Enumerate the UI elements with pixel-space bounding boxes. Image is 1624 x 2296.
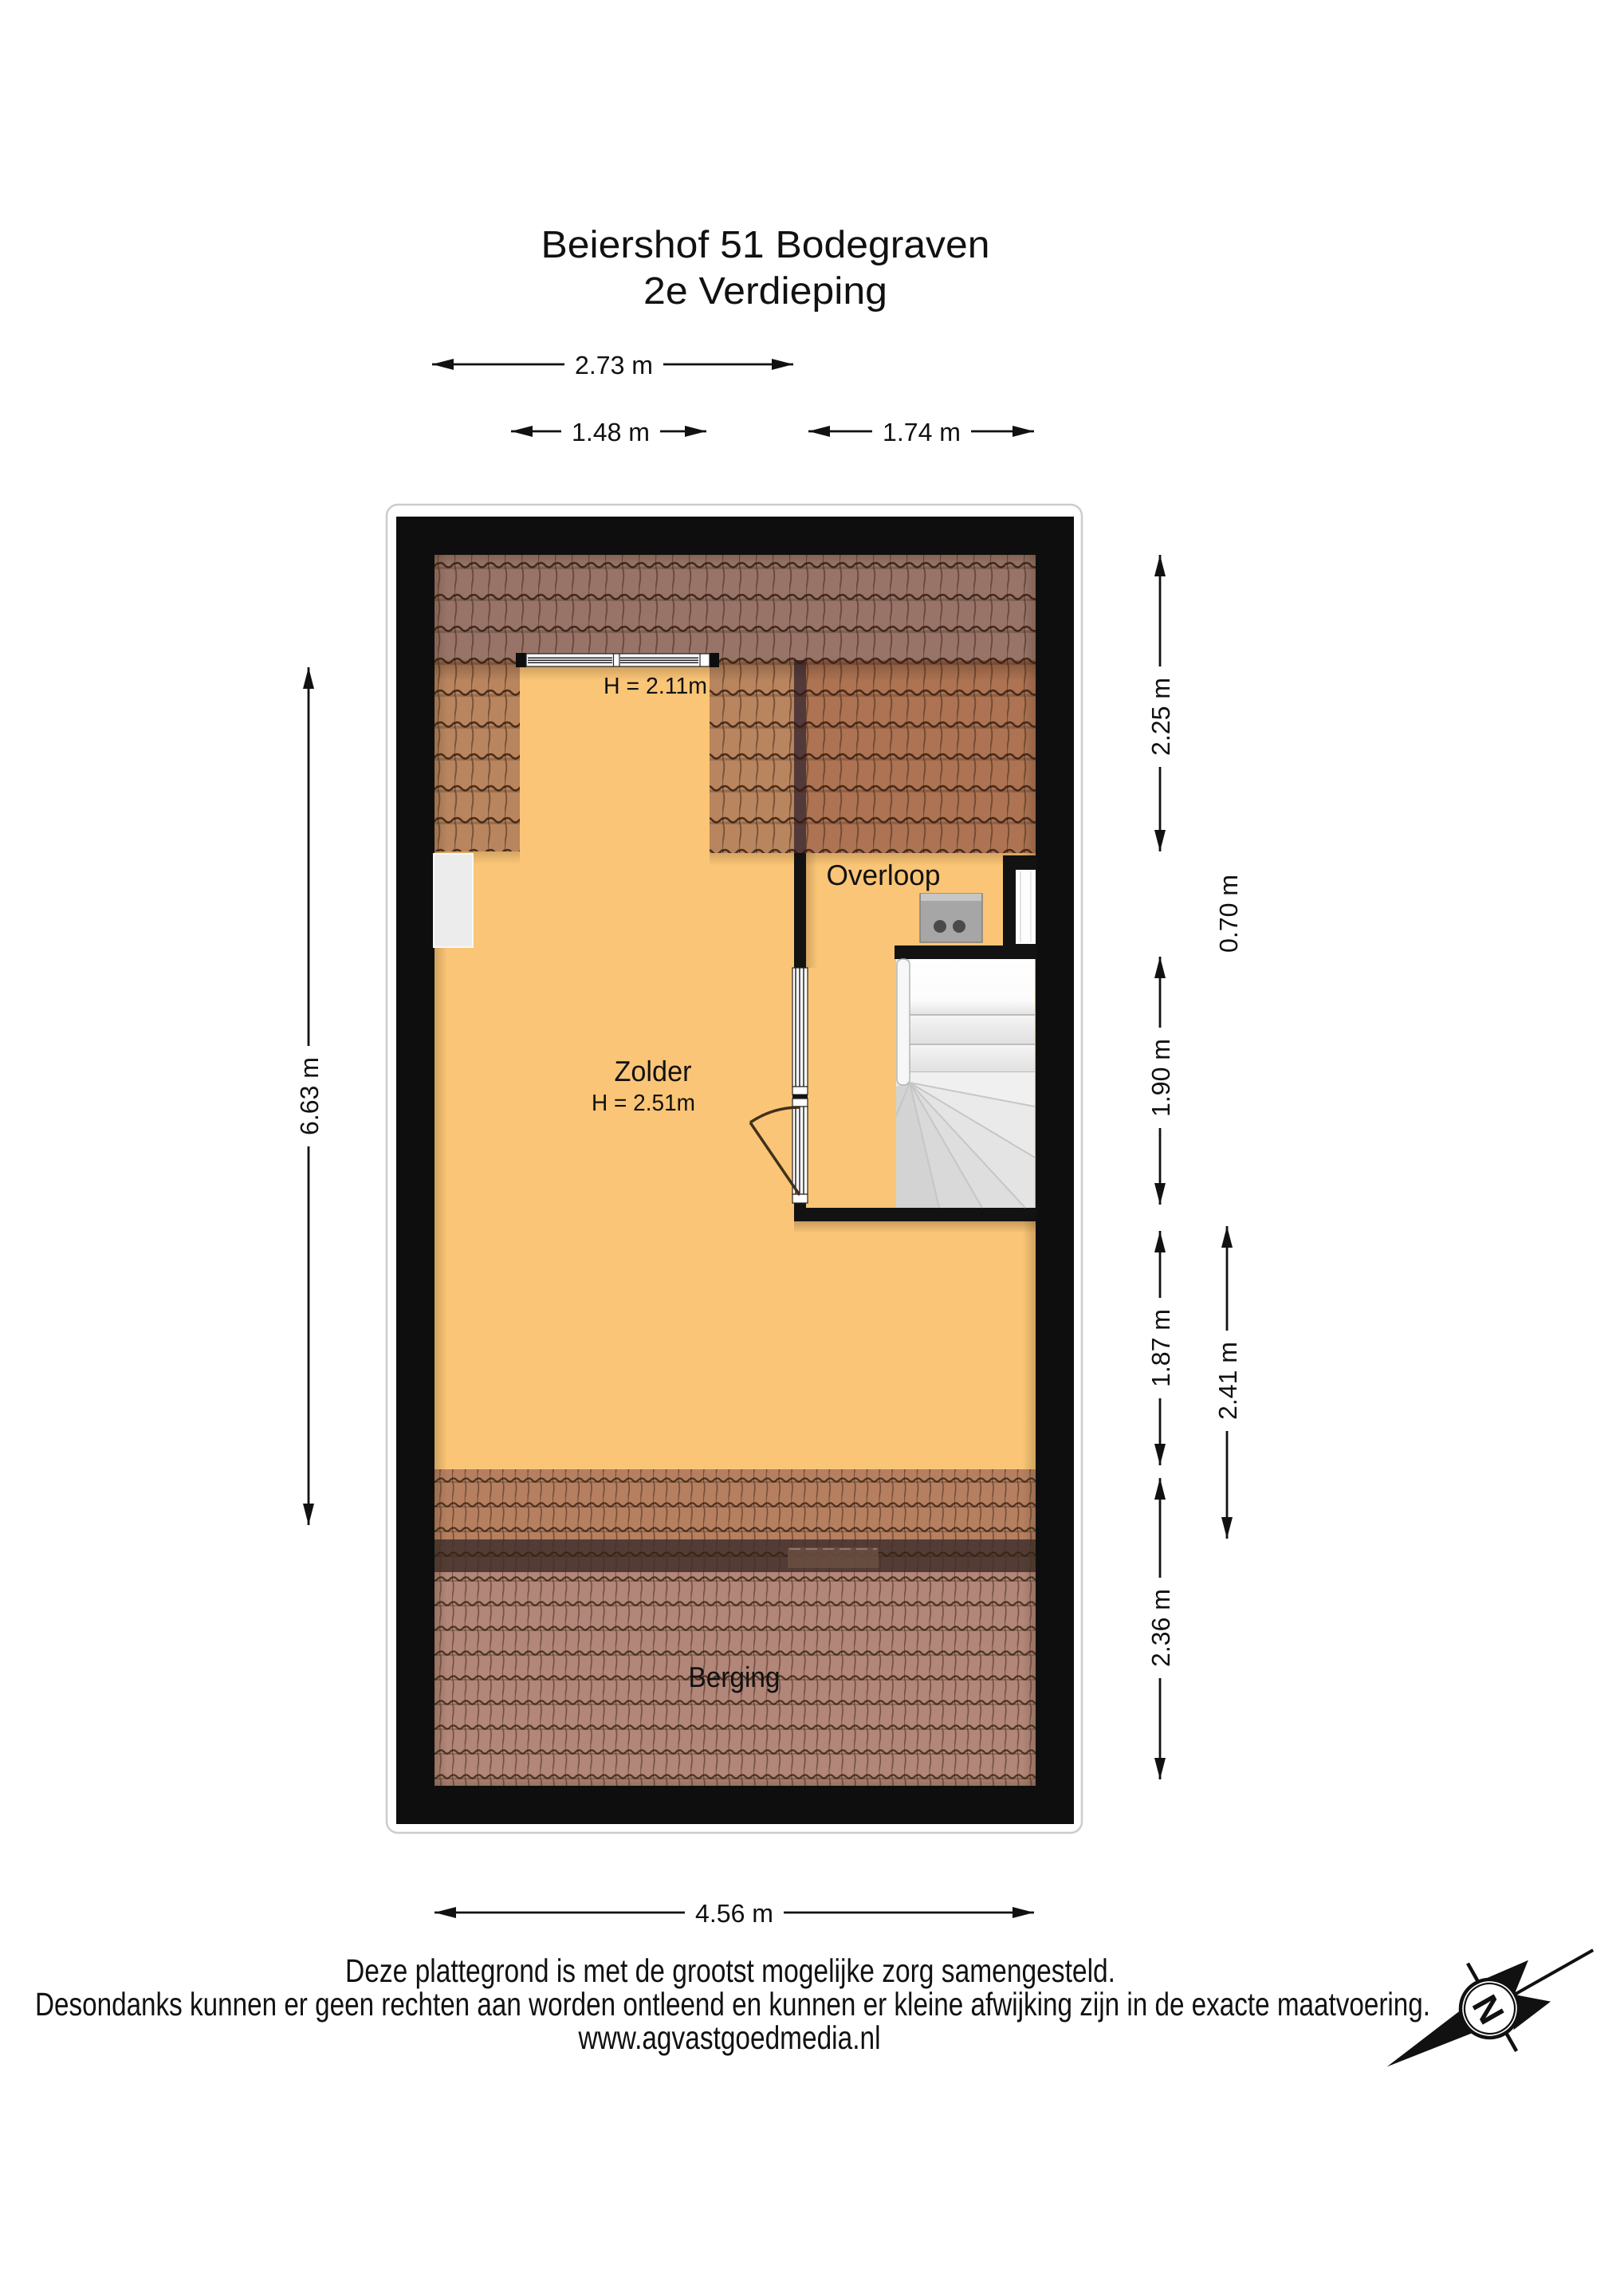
svg-text:4.56 m: 4.56 m: [695, 1899, 773, 1928]
svg-text:1.74 m: 1.74 m: [883, 418, 961, 446]
svg-text:2e Verdieping: 2e Verdieping: [643, 270, 887, 313]
svg-text:Berging: Berging: [689, 1661, 781, 1693]
svg-text:Desondanks kunnen er geen rech: Desondanks kunnen er geen rechten aan wo…: [35, 1986, 1430, 2023]
svg-text:Deze plattegrond is met de gro: Deze plattegrond is met de grootst mogel…: [345, 1952, 1115, 1989]
svg-text:2.73 m: 2.73 m: [575, 351, 653, 379]
svg-text:1.48 m: 1.48 m: [572, 418, 650, 446]
svg-text:Beiershof 51 Bodegraven: Beiershof 51 Bodegraven: [541, 224, 990, 266]
svg-text:1.90 m: 1.90 m: [1146, 1039, 1175, 1117]
svg-text:0.70 m: 0.70 m: [1214, 875, 1243, 953]
svg-text:H = 2.51m: H = 2.51m: [592, 1091, 695, 1116]
svg-text:H = 2.11m: H = 2.11m: [604, 674, 707, 699]
svg-text:1.87 m: 1.87 m: [1146, 1309, 1175, 1387]
svg-text:6.63 m: 6.63 m: [295, 1057, 324, 1135]
svg-text:2.25 m: 2.25 m: [1146, 678, 1175, 756]
svg-text:Zolder: Zolder: [615, 1055, 692, 1087]
svg-text:www.agvastgoedmedia.nl: www.agvastgoedmedia.nl: [578, 2019, 881, 2056]
svg-text:Overloop: Overloop: [827, 859, 941, 891]
svg-text:2.41 m: 2.41 m: [1213, 1342, 1242, 1420]
svg-text:2.36 m: 2.36 m: [1146, 1589, 1175, 1667]
